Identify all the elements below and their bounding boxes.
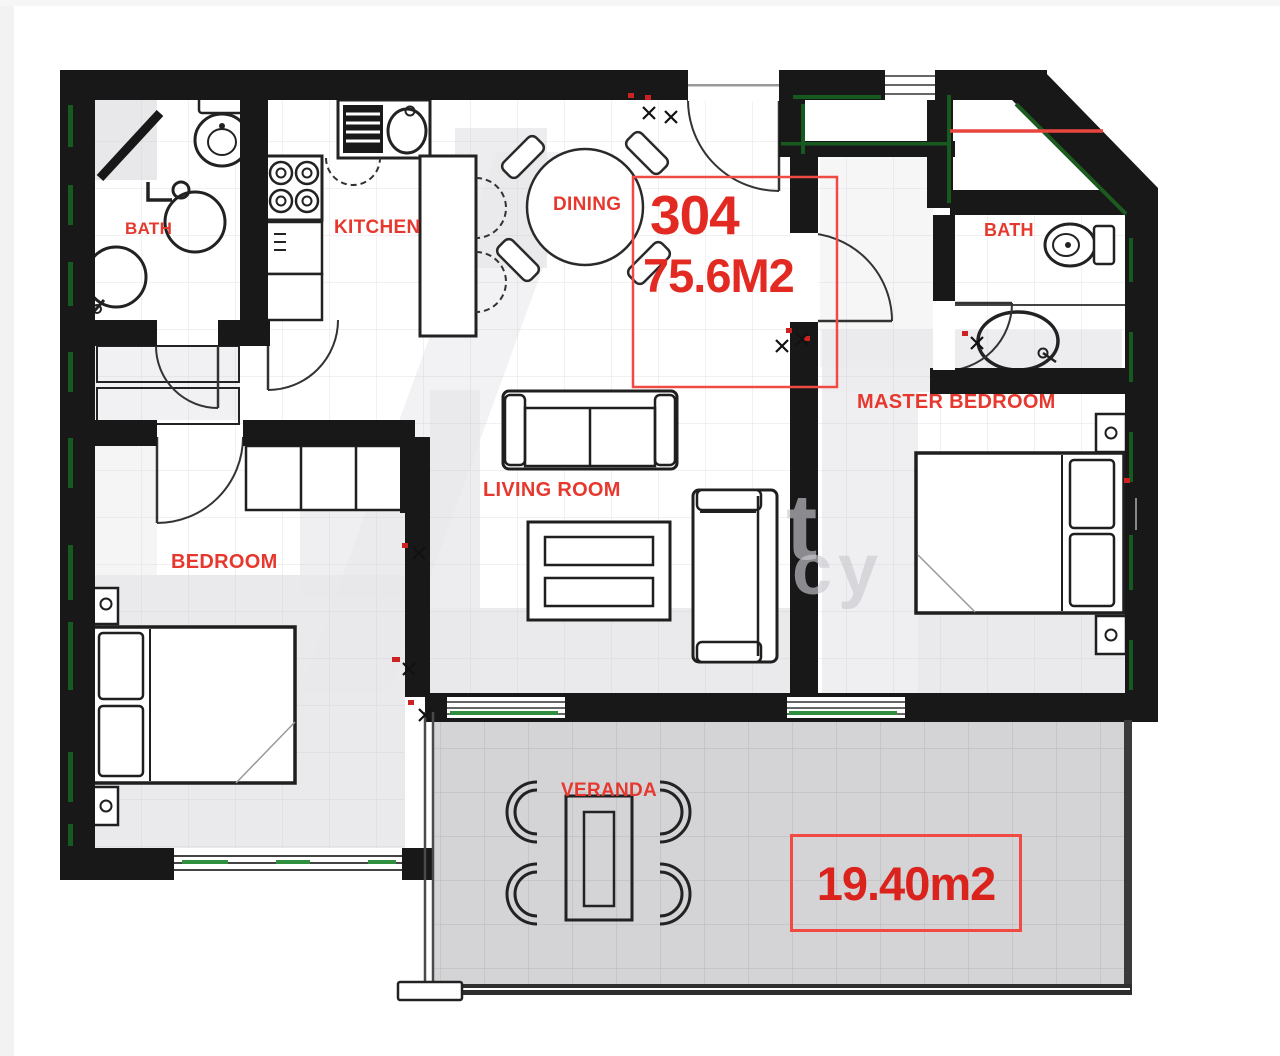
floorplan-drawing [0,0,1280,1056]
room-label-dining: DINING [553,194,621,216]
room-label-bath-right: BATH [984,220,1034,241]
veranda-area-value: 19.40m2 [817,856,996,911]
closet-icon [246,446,412,510]
unit-number-label: 304 [650,188,739,243]
room-label-bedroom: BEDROOM [171,551,278,574]
sofa2-icon [693,490,777,662]
unit-area-label: 75.6M2 [643,252,794,299]
veranda-floor [433,712,1130,984]
room-label-kitchen: KITCHEN [334,217,421,239]
room-label-veranda: VERANDA [561,780,657,802]
floorplan-page: BATH KITCHEN DINING BATH MASTER BEDROOM … [0,0,1280,1056]
room-label-bath-left: BATH [125,219,172,239]
room-label-master-bedroom: MASTER BEDROOM [857,391,1056,414]
watermark-fragment: cy [792,534,884,606]
room-label-living-room: LIVING ROOM [483,479,621,502]
veranda-area-box: 19.40m2 [790,834,1022,932]
